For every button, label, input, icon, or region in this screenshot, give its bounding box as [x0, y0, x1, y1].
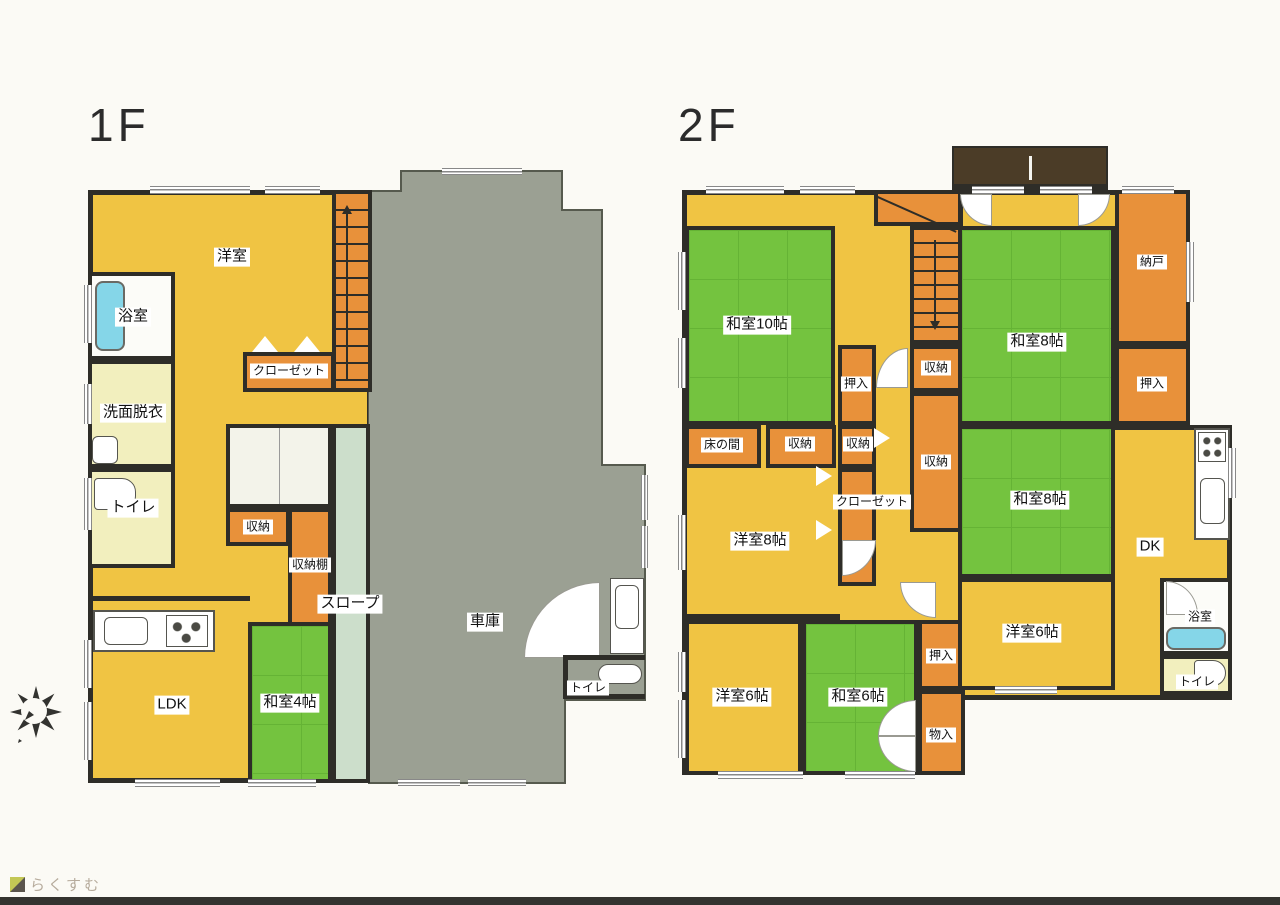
room-label-storage: 収納 — [243, 520, 273, 535]
window — [84, 285, 92, 343]
closet-door-mark — [252, 336, 278, 352]
window — [800, 186, 855, 194]
room-label-ldk: LDK — [154, 696, 189, 715]
room-label-yoshitsu6: 洋室6帖 — [1002, 624, 1061, 643]
window — [84, 640, 92, 688]
window — [678, 338, 686, 388]
room-label-oshiire: 押入 — [841, 377, 871, 392]
stairs-landing-2f — [874, 190, 962, 226]
room-label-tokonoma: 床の間 — [701, 438, 743, 453]
room-label-oshiire: 押入 — [1137, 377, 1167, 392]
window — [468, 779, 526, 786]
window — [995, 686, 1057, 694]
room-label-garage-toilet: トイレ — [567, 681, 609, 696]
window — [678, 700, 686, 758]
room-label-washitsu4: 和室4帖 — [260, 694, 319, 713]
door-fold-mark — [816, 520, 832, 540]
room-label-storage: 収納 — [921, 361, 951, 376]
room-label-washitsu10: 和室10帖 — [723, 316, 791, 335]
window — [1186, 242, 1194, 302]
room-label-nando: 納戸 — [1137, 255, 1167, 270]
window — [678, 515, 686, 570]
room-label-slope: スロープ — [317, 595, 382, 614]
room-label-washroom: 洗面脱衣 — [100, 404, 166, 423]
scan-edge-bar — [0, 897, 1280, 905]
room-label-yoshitsu8: 洋室8帖 — [730, 532, 789, 551]
window — [442, 168, 522, 175]
room-label-toilet: トイレ — [1176, 675, 1218, 690]
kitchen-sink-1f — [104, 617, 148, 645]
stove-2f — [1198, 432, 1226, 462]
japanese-room-8-top-2f — [958, 226, 1115, 425]
window — [84, 702, 92, 760]
room-label-toilet: トイレ — [107, 499, 158, 518]
room-label-monoire: 物入 — [926, 728, 956, 743]
window — [718, 771, 803, 779]
north-compass-symbol — [10, 686, 64, 746]
window — [678, 652, 686, 692]
stove-1f — [166, 615, 208, 647]
window — [1228, 448, 1236, 498]
house-icon — [10, 877, 25, 892]
room-label-yoshitsu6: 洋室6帖 — [712, 688, 771, 707]
window — [84, 478, 92, 530]
room-label-oshiire: 押入 — [926, 649, 956, 664]
wash-basin-1f — [92, 436, 118, 464]
stairs-up-arrow — [342, 205, 352, 380]
room-label-storage: 収納 — [843, 437, 873, 452]
room-label-washitsu6: 和室6帖 — [828, 688, 887, 707]
window — [248, 779, 316, 787]
stairs-1f — [332, 190, 372, 392]
room-label-washitsu8: 和室8帖 — [1010, 491, 1069, 510]
site-logo-text: らくすむ — [30, 874, 102, 895]
room-label-storage: 収納 — [921, 455, 951, 470]
stairs-down-arrow — [930, 240, 940, 330]
site-logo: らくすむ — [10, 874, 102, 895]
room-label-closet: クローゼット — [250, 364, 328, 379]
room-label-storage: 収納 — [785, 437, 815, 452]
floor-title-1f: 1F — [88, 98, 150, 152]
shoe-cabinet — [610, 578, 644, 654]
window — [1040, 186, 1092, 194]
window — [398, 779, 460, 786]
window — [845, 771, 915, 779]
floor-title-2f: 2F — [678, 98, 740, 152]
room-label-washitsu8: 和室8帖 — [1007, 333, 1066, 352]
window — [84, 384, 92, 424]
balcony-mark — [1029, 156, 1032, 180]
window — [641, 526, 648, 568]
window — [135, 779, 220, 787]
window — [706, 186, 784, 194]
room-label-yoshitsu: 洋室 — [214, 248, 250, 267]
entrance-divider — [279, 428, 280, 504]
room-label-storage-shelf: 収納棚 — [289, 558, 331, 573]
window — [641, 475, 648, 520]
kitchen-sink-2f — [1200, 478, 1225, 524]
window — [678, 252, 686, 310]
room-label-garage: 車庫 — [467, 613, 503, 632]
room-label-closet: クローゼット — [833, 495, 911, 510]
room-label-bath: 浴室 — [115, 308, 151, 327]
room-label-bath: 浴室 — [1185, 610, 1215, 625]
window — [150, 186, 250, 194]
window — [972, 186, 1024, 194]
garage-toilet-wall — [563, 655, 645, 660]
ldk-wall — [88, 596, 250, 601]
door-fold-mark — [874, 428, 890, 448]
window — [265, 186, 320, 194]
bathtub-2f — [1166, 627, 1226, 650]
floorplan-scan: 1F洋室浴室洗面脱衣トイレクローゼット収納収納棚スロープLDK和室4帖車庫トイレ… — [0, 0, 1280, 905]
closet-door-mark — [294, 336, 320, 352]
room-label-dk: DK — [1137, 538, 1164, 557]
door-fold-mark — [816, 466, 832, 486]
window — [1122, 186, 1174, 194]
